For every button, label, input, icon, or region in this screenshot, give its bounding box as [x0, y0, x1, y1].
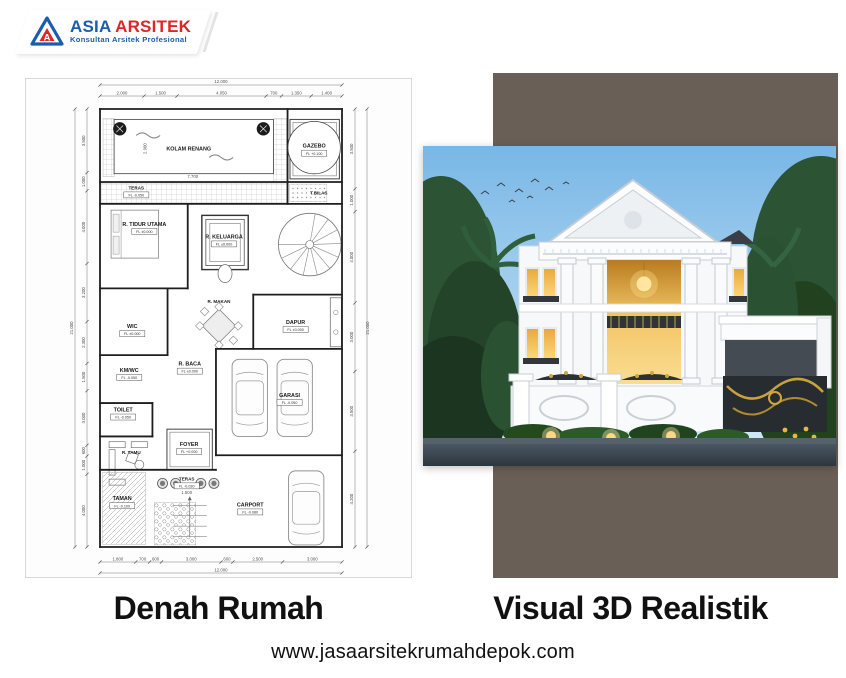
svg-text:FL -0.050: FL -0.050 — [282, 401, 298, 405]
svg-text:3.200: 3.200 — [81, 287, 86, 298]
svg-text:3.000: 3.000 — [81, 412, 86, 423]
brand-asia-text: ASIA — [70, 17, 111, 36]
svg-text:3.000: 3.000 — [349, 331, 354, 342]
svg-text:4.000: 4.000 — [81, 505, 86, 516]
svg-text:700: 700 — [139, 556, 147, 561]
svg-text:1.000: 1.000 — [81, 176, 86, 187]
svg-text:3.000: 3.000 — [186, 556, 197, 561]
svg-text:600: 600 — [223, 556, 231, 561]
svg-text:3.500: 3.500 — [349, 143, 354, 154]
svg-text:FL ±0.000: FL ±0.000 — [124, 332, 140, 336]
svg-text:4.050: 4.050 — [216, 90, 227, 95]
svg-text:4.000: 4.000 — [349, 251, 354, 262]
svg-text:TERAS: TERAS — [179, 476, 195, 481]
svg-text:R. MAKAN: R. MAKAN — [207, 299, 231, 304]
svg-text:1.000: 1.000 — [81, 459, 86, 470]
svg-text:R. TIDUR UTAMA: R. TIDUR UTAMA — [122, 222, 166, 228]
svg-text:FL ±0.000: FL ±0.000 — [287, 328, 303, 332]
asia-arsitek-logo: A ASIA ARSITEK Konsultan Arsitek Profesi… — [22, 10, 212, 58]
svg-text:21.000: 21.000 — [365, 321, 370, 335]
floor-plan-card: KOLAM RENANGGAZEBOFL +0.100TERASFL -0.05… — [25, 78, 412, 578]
svg-text:FL +0.000: FL +0.000 — [181, 450, 198, 454]
house-render-drawing — [423, 146, 836, 466]
triangle-logo-icon: A — [30, 15, 64, 47]
svg-text:21.000: 21.000 — [69, 321, 74, 335]
svg-text:1.350: 1.350 — [291, 90, 302, 95]
svg-text:2.500: 2.500 — [252, 556, 263, 561]
svg-text:R. BACA: R. BACA — [179, 362, 202, 368]
svg-text:R. TAMU: R. TAMU — [122, 450, 141, 455]
svg-text:12.000: 12.000 — [214, 79, 228, 84]
svg-text:T.BILAS: T.BILAS — [310, 191, 327, 196]
svg-text:A: A — [44, 33, 51, 44]
svg-text:2.900: 2.900 — [142, 143, 147, 154]
ornate-gate — [723, 376, 827, 432]
svg-text:600: 600 — [152, 556, 160, 561]
svg-text:12.000: 12.000 — [214, 568, 228, 573]
svg-text:FL -0.050: FL -0.050 — [128, 194, 144, 198]
svg-text:DAPUR: DAPUR — [286, 320, 305, 326]
svg-text:FL ±0.000: FL ±0.000 — [136, 230, 152, 234]
svg-text:FL +0.100: FL +0.100 — [306, 152, 323, 156]
svg-text:700: 700 — [270, 90, 278, 95]
road — [423, 442, 836, 466]
svg-text:WIC: WIC — [127, 324, 138, 330]
svg-text:GARASI: GARASI — [279, 393, 300, 399]
svg-text:FL -0.050: FL -0.050 — [115, 416, 131, 420]
svg-text:CARPORT: CARPORT — [237, 502, 264, 508]
svg-text:1.800: 1.800 — [112, 556, 123, 561]
svg-text:GAZEBO: GAZEBO — [303, 144, 326, 150]
svg-text:FL -0.050: FL -0.050 — [121, 376, 137, 380]
svg-text:FL ±0.000: FL ±0.000 — [216, 243, 232, 247]
brand-name: ASIA ARSITEK — [70, 18, 191, 36]
svg-text:FL -0.080: FL -0.080 — [242, 511, 258, 515]
svg-text:1.500: 1.500 — [81, 371, 86, 382]
svg-text:7.700: 7.700 — [187, 174, 198, 179]
brand-tagline: Konsultan Arsitek Profesional — [70, 36, 191, 44]
svg-text:1.500: 1.500 — [181, 490, 192, 495]
svg-text:2.300: 2.300 — [81, 337, 86, 348]
svg-text:KM/WC: KM/WC — [120, 368, 139, 374]
caption-denah-rumah: Denah Rumah — [25, 590, 412, 627]
brand-arsitek-text: ARSITEK — [115, 17, 191, 36]
svg-text:2.000: 2.000 — [117, 90, 128, 95]
svg-text:FL -0.100: FL -0.100 — [114, 504, 130, 508]
website-url: www.jasaarsitekrumahdepok.com — [0, 641, 846, 664]
svg-text:1.500: 1.500 — [155, 90, 166, 95]
svg-text:KOLAM RENANG: KOLAM RENANG — [166, 147, 211, 153]
flyer-page: A ASIA ARSITEK Konsultan Arsitek Profesi… — [0, 0, 846, 678]
svg-text:FL ±0.000: FL ±0.000 — [182, 370, 198, 374]
entablature — [539, 242, 731, 260]
svg-text:600: 600 — [81, 446, 86, 454]
svg-text:TERAS: TERAS — [129, 185, 145, 190]
svg-text:3.000: 3.000 — [307, 556, 318, 561]
svg-text:FOYER: FOYER — [180, 442, 199, 448]
balcony-rail-center — [607, 316, 681, 328]
house-3d-render — [423, 146, 836, 466]
caption-visual-3d: Visual 3D Realistik — [423, 590, 838, 627]
svg-text:1.400: 1.400 — [321, 90, 332, 95]
svg-text:4.200: 4.200 — [349, 493, 354, 504]
svg-text:4.000: 4.000 — [81, 221, 86, 232]
svg-text:TAMAN: TAMAN — [113, 496, 132, 502]
svg-text:3.500: 3.500 — [81, 135, 86, 146]
svg-text:3.500: 3.500 — [349, 405, 354, 416]
svg-text:1.000: 1.000 — [349, 194, 354, 205]
svg-text:TOILET: TOILET — [114, 407, 134, 413]
floor-plan-drawing: KOLAM RENANGGAZEBOFL +0.100TERASFL -0.05… — [26, 79, 411, 577]
svg-text:FL -0.030: FL -0.030 — [179, 484, 195, 488]
svg-text:R. KELUARGA: R. KELUARGA — [205, 234, 243, 240]
